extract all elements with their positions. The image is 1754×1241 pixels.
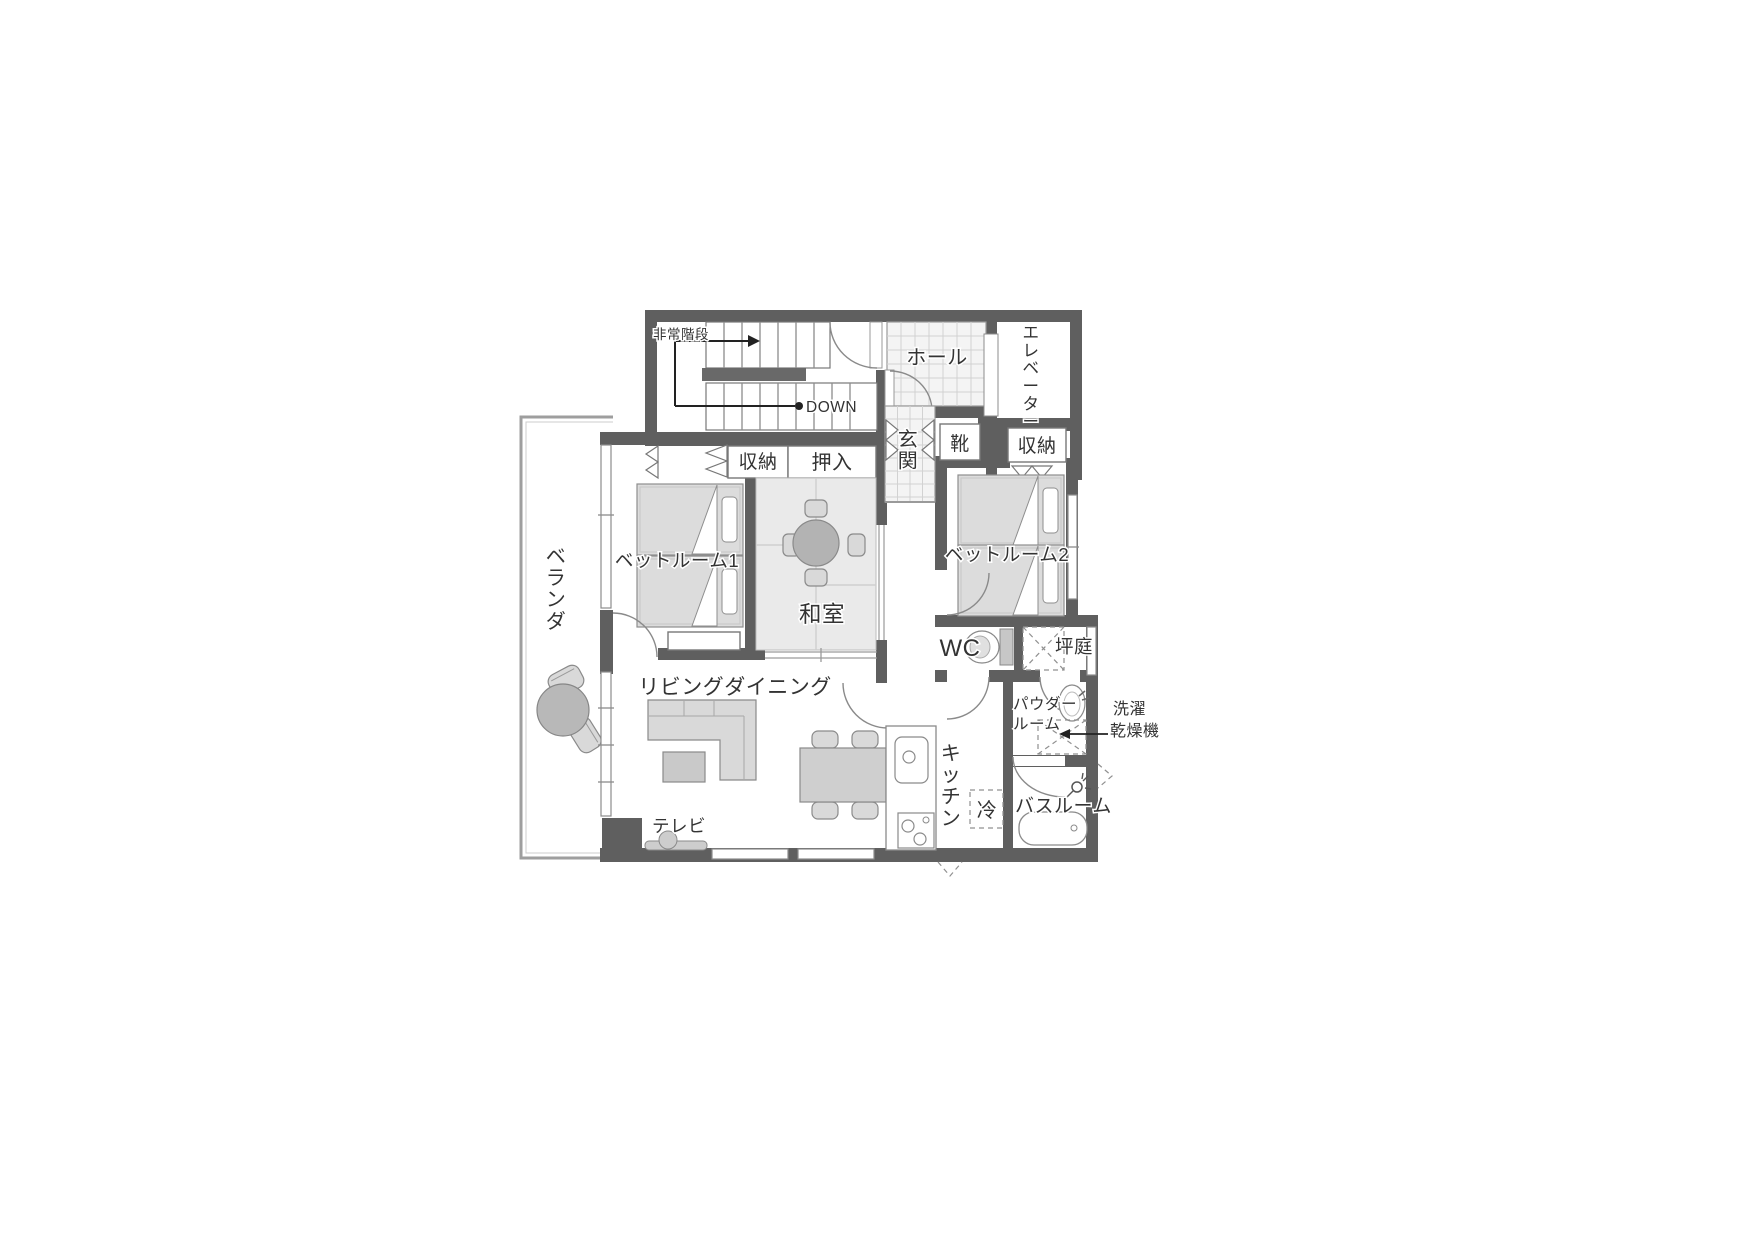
dining-chair bbox=[812, 802, 838, 819]
hall: ホール bbox=[885, 322, 986, 412]
laundry-label-2: 乾燥機 bbox=[1110, 722, 1160, 740]
veranda-inner-line bbox=[526, 422, 613, 853]
closet-a-label: 収納 bbox=[738, 451, 777, 473]
closet-b-label: 収納 bbox=[1017, 435, 1056, 457]
shower-icon bbox=[1072, 782, 1082, 792]
tv-label: テレビ bbox=[652, 816, 706, 836]
washitsu: 和室 bbox=[756, 478, 884, 662]
wc-door-arc bbox=[947, 677, 989, 719]
pillar-west-mid bbox=[600, 610, 613, 674]
veranda-outline bbox=[521, 417, 613, 858]
bedroom1-bed-1 bbox=[637, 484, 743, 555]
wall-top bbox=[645, 310, 1082, 322]
living-dining: リビングダイニング テレビ bbox=[638, 676, 888, 850]
veranda bbox=[521, 417, 613, 858]
powder-room-label-2: ルーム bbox=[1013, 716, 1061, 733]
window-bedroom1-west bbox=[601, 445, 611, 608]
bathroom-label: バスルーム bbox=[1015, 796, 1112, 817]
bedroom2-bed-1 bbox=[958, 475, 1064, 546]
stair-handrail bbox=[702, 368, 806, 381]
elevator: エレベーター bbox=[984, 324, 1040, 431]
hall-label: ホール bbox=[906, 347, 968, 369]
oshiire-label: 押入 bbox=[812, 451, 853, 474]
wall-stair-bottom bbox=[645, 432, 887, 446]
elevator-label: エレベーター bbox=[1023, 324, 1040, 431]
dining-chair bbox=[852, 802, 878, 819]
dining-chair bbox=[812, 731, 838, 748]
wall-wc-bottom-a bbox=[935, 670, 947, 682]
washitsu-chair-top bbox=[805, 500, 827, 517]
ottoman bbox=[663, 752, 705, 782]
washitsu-side-sliding-doors bbox=[879, 525, 884, 640]
shoes-label: 靴 bbox=[950, 433, 970, 455]
veranda-label: ベランダ bbox=[546, 546, 567, 633]
closet-door-mark bbox=[706, 461, 727, 477]
down-label: DOWN bbox=[806, 399, 857, 416]
emergency-stairs-label: 非常階段 bbox=[653, 327, 709, 342]
wall-wc-bottom-b bbox=[989, 670, 1040, 682]
bedroom1-bench bbox=[668, 632, 740, 650]
area-labels: ベランダ bbox=[546, 546, 567, 633]
wall-corridor-lower bbox=[876, 640, 887, 683]
stair-door-leaf bbox=[870, 322, 882, 368]
pillar-southwest bbox=[602, 818, 642, 852]
bedroom2-label: ベットルーム2 bbox=[945, 544, 1069, 565]
closet-door-mark bbox=[646, 446, 658, 462]
wall-wc-courtyard bbox=[1014, 627, 1023, 670]
dining-table bbox=[800, 748, 886, 802]
window-living-west bbox=[601, 672, 611, 816]
closet-door-mark bbox=[646, 462, 658, 478]
genkan-label: 玄関 bbox=[898, 428, 919, 473]
wall-powder-west bbox=[1003, 682, 1013, 860]
washitsu-chair-bottom bbox=[805, 569, 827, 586]
dining-chair bbox=[852, 731, 878, 748]
wall-wc-top bbox=[935, 615, 1088, 627]
bath-vent-mark bbox=[1098, 764, 1112, 788]
toilet-tank bbox=[1000, 629, 1013, 665]
living-door-arc bbox=[843, 683, 888, 728]
window-living-south-b bbox=[798, 849, 874, 859]
bedroom2: ベットルーム2 bbox=[945, 475, 1069, 616]
bedroom1: ベットルーム1 bbox=[613, 484, 743, 657]
stair-down-dot bbox=[795, 402, 803, 410]
floor-plan-page: 非常階段 DOWN ホール エレベーター 玄関 靴 収納 押入 bbox=[0, 0, 1754, 1241]
closet-door-mark bbox=[706, 445, 727, 461]
emergency-stairs: 非常階段 DOWN bbox=[653, 322, 882, 430]
washitsu-chair-right bbox=[848, 534, 865, 556]
veranda-table bbox=[537, 684, 589, 736]
window-living-south-a bbox=[712, 849, 788, 859]
floor-plan: 非常階段 DOWN ホール エレベーター 玄関 靴 収納 押入 bbox=[0, 0, 1754, 1241]
washitsu-round-table bbox=[793, 520, 839, 566]
powder-room-label-1: パウダー bbox=[1013, 695, 1077, 713]
wc-label: WC bbox=[940, 635, 981, 662]
kitchen-label: キッチン bbox=[941, 743, 962, 830]
laundry-label-1: 洗濯 bbox=[1113, 700, 1146, 718]
doorway-bedroom2 bbox=[935, 570, 947, 618]
doorway-bathroom bbox=[1013, 756, 1065, 766]
wall-bedroom1-top bbox=[600, 432, 657, 445]
wall-east-upper bbox=[1070, 310, 1082, 480]
kitchen-vent-mark bbox=[938, 862, 962, 876]
washitsu-label: 和室 bbox=[799, 602, 845, 627]
bedroom1-label: ベットルーム1 bbox=[615, 550, 739, 571]
fridge-label: 冷 bbox=[977, 799, 998, 822]
tsuboniwa-label: 坪庭 bbox=[1055, 636, 1093, 657]
kitchen-sink bbox=[895, 737, 928, 783]
elevator-door bbox=[984, 334, 998, 416]
living-dining-label: リビングダイニング bbox=[638, 676, 832, 699]
